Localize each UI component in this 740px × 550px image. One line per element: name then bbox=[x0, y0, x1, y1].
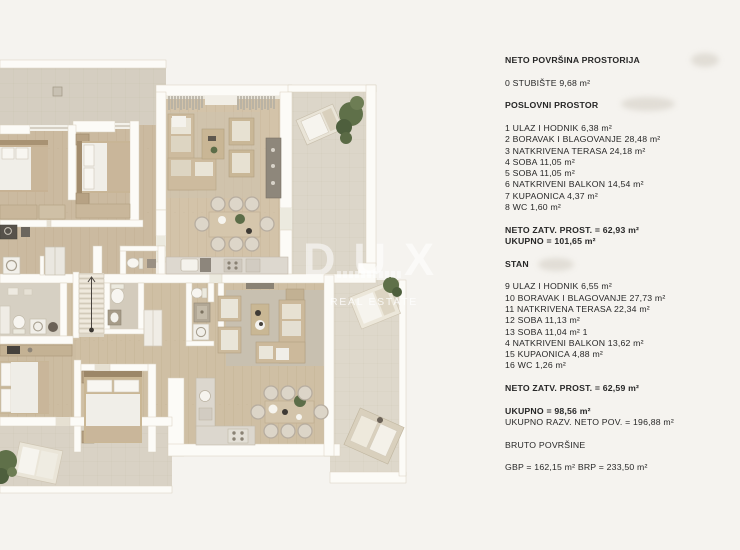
svg-text:DUX: DUX bbox=[303, 234, 452, 285]
svg-text:REAL ESTATE: REAL ESTATE bbox=[330, 296, 418, 308]
